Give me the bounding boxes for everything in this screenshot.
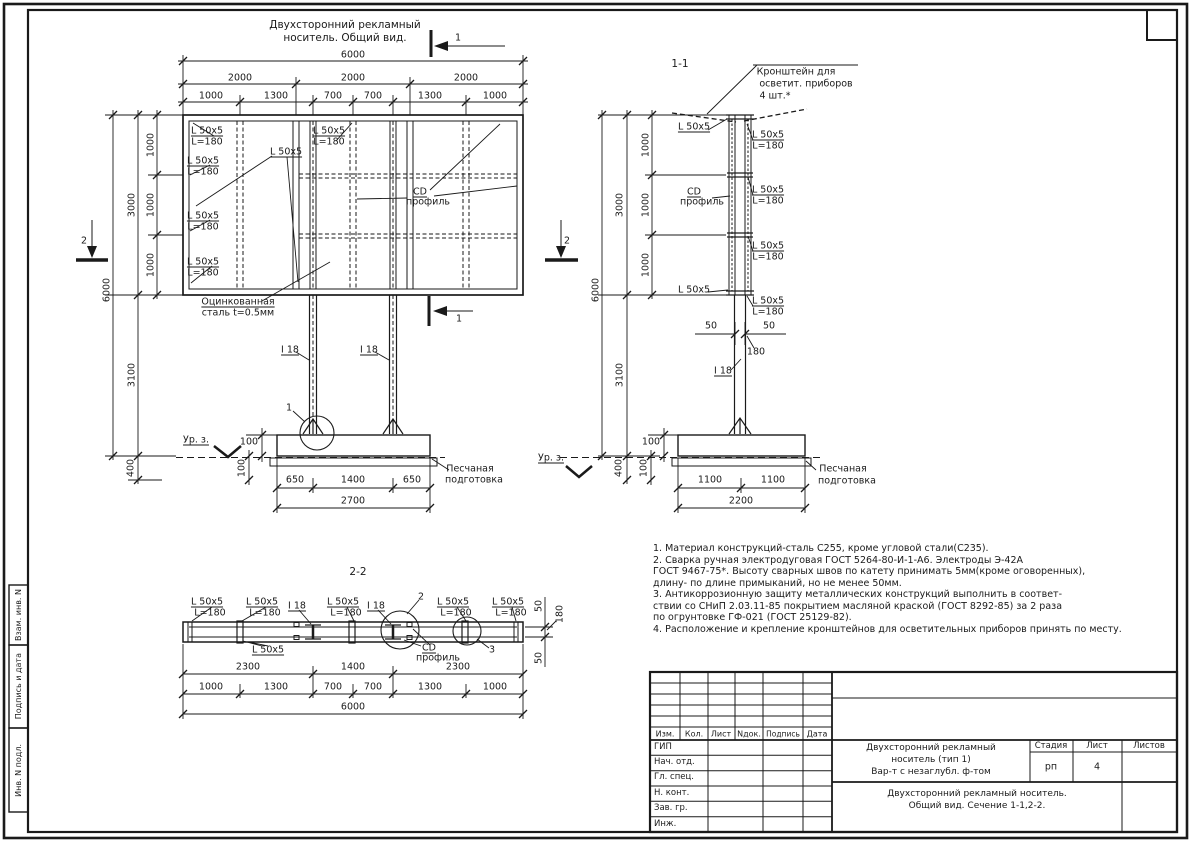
dim-label: 1300 xyxy=(264,91,288,102)
dim-label: 2000 xyxy=(341,73,365,84)
dim-label: 1300 xyxy=(264,682,288,693)
note-line: 2. Сварка ручная электродуговая ГОСТ 526… xyxy=(653,555,1183,567)
dim-label: 6000 xyxy=(591,278,602,302)
dim-label: L 50x5 xyxy=(437,597,469,608)
tb-role-zav-gr: Зав. гр. xyxy=(654,803,688,813)
dim-label: 1000 xyxy=(146,193,157,217)
tb-col-kol: Кол. xyxy=(685,729,703,738)
dim-label: 1000 xyxy=(146,253,157,277)
dim-label: 2300 xyxy=(236,662,260,673)
dim-label: L=180 xyxy=(187,268,218,279)
dim-label: сталь t=0.5мм xyxy=(202,308,274,319)
dim-label: 700 xyxy=(324,91,342,102)
dim-label: L 50x5 xyxy=(752,241,784,252)
dim-label: I 18 xyxy=(360,345,378,356)
dim-label: 3100 xyxy=(127,363,138,387)
dim-label: L=180 xyxy=(440,608,471,619)
corner-stamp-box xyxy=(1147,10,1177,40)
dim-label: 1300 xyxy=(418,682,442,693)
dim-label: 1400 xyxy=(341,475,365,486)
dim-label: I 18 xyxy=(288,601,306,612)
dim-label: 1000 xyxy=(641,253,652,277)
drawing-sheet: Двухсторонний рекламныйноситель. Общий в… xyxy=(0,0,1191,842)
tb-stage-value: рп xyxy=(1045,762,1057,773)
section-1-1-title: 1-1 xyxy=(671,58,688,70)
dim-label: 6000 xyxy=(341,50,365,61)
dim-label: 1000 xyxy=(641,193,652,217)
dim-label: 400 xyxy=(614,459,625,477)
note-line: 3. Антикоррозионную защиту металлических… xyxy=(653,589,1183,601)
dim-label: L=180 xyxy=(752,252,783,263)
tb-doc-title: Двухсторонний рекламный носитель (тип 1)… xyxy=(838,742,1024,778)
dim-label: 3000 xyxy=(615,193,626,217)
dim-label: L=180 xyxy=(752,141,783,152)
dim-label: L=180 xyxy=(249,608,280,619)
dim-label: L=180 xyxy=(495,608,526,619)
dim-label: профиль xyxy=(680,197,724,208)
note-line: ГОСТ 9467-75*. Высоту сварных швов по ка… xyxy=(653,566,1183,578)
tb-subtitle: Двухсторонний рекламный носитель. Общий … xyxy=(837,788,1117,812)
tb-col-data: Дата xyxy=(807,729,828,738)
tb-role-inzh: Инж. xyxy=(654,819,676,829)
dim-label: L=180 xyxy=(752,196,783,207)
dim-label: Кронштейн для xyxy=(757,67,836,78)
dim-label: L 50x5 xyxy=(252,645,284,656)
dim-label: L 50x5 xyxy=(191,126,223,137)
dim-label: L=180 xyxy=(187,167,218,178)
dim-label: 400 xyxy=(126,459,137,477)
dim-label: 2200 xyxy=(729,496,753,507)
tb-role-nach-otd: Нач. отд. xyxy=(654,757,695,767)
front-view-title: носитель. Общий вид. xyxy=(283,32,406,44)
note-line: 1. Материал конструкций-сталь С255, кром… xyxy=(653,543,1183,555)
dim-label: 3000 xyxy=(127,193,138,217)
dim-label: L=180 xyxy=(194,608,225,619)
detail-3-label: 3 xyxy=(489,645,495,656)
dim-label: L=180 xyxy=(313,137,344,148)
dim-label: I 18 xyxy=(281,345,299,356)
dim-label: Ур. з. xyxy=(183,435,209,446)
dim-label: 1300 xyxy=(418,91,442,102)
section-mark-1-label: 1 xyxy=(455,33,461,44)
dim-label: L 50x5 xyxy=(492,597,524,608)
drawing-linework xyxy=(0,0,1191,842)
dim-label: Песчаная xyxy=(446,464,493,475)
dim-label: 650 xyxy=(286,475,304,486)
dim-label: 1100 xyxy=(761,475,785,486)
dim-label: 1400 xyxy=(341,662,365,673)
dim-label: L 50x5 xyxy=(313,126,345,137)
dim-label: 100 xyxy=(639,459,650,477)
margin-box-vzam: Взам. инв. N xyxy=(9,585,28,645)
tb-role-n-kont: Н. конт. xyxy=(654,788,689,798)
dim-label: 700 xyxy=(364,91,382,102)
dim-label: L 50x5 xyxy=(246,597,278,608)
dim-label: подготовка xyxy=(818,476,876,487)
dim-label: L 50x5 xyxy=(752,185,784,196)
dim-label: Песчаная xyxy=(819,464,866,475)
dim-label: L 50x5 xyxy=(678,122,710,133)
tb-sheet-value: 4 xyxy=(1094,762,1100,773)
front-view xyxy=(176,115,523,466)
dim-label: 4 шт.* xyxy=(759,91,790,102)
note-line: длину- по длине примыканий, но не менее … xyxy=(653,578,1183,590)
dim-label: L=180 xyxy=(330,608,361,619)
dim-label: L=180 xyxy=(752,307,783,318)
dim-label: 6000 xyxy=(102,278,113,302)
detail-2-label: 2 xyxy=(418,592,424,603)
dim-label: профиль xyxy=(406,197,450,208)
dim-label: L 50x5 xyxy=(327,597,359,608)
dim-label: L 50x5 xyxy=(678,285,710,296)
dim-label: 1000 xyxy=(199,682,223,693)
dim-label: L 50x5 xyxy=(187,257,219,268)
dim-label: 1100 xyxy=(698,475,722,486)
dim-label: I 18 xyxy=(714,366,732,377)
note-line: ствии со СНиП 2.03.11-85 покрытием масля… xyxy=(653,601,1183,613)
margin-box-inv: Инв. N подл. xyxy=(9,728,28,812)
dim-label: 1000 xyxy=(199,91,223,102)
dim-label: подготовка xyxy=(445,475,503,486)
dim-label: 50 xyxy=(763,321,775,332)
tb-col-ndok: Nдок. xyxy=(737,729,761,738)
dim-label: 1000 xyxy=(146,133,157,157)
dim-label: осветит. приборов xyxy=(759,79,852,90)
dim-label: Ур. з. xyxy=(538,453,564,464)
tb-role-gl-spec: Гл. спец. xyxy=(654,772,694,782)
dim-label: 2000 xyxy=(228,73,252,84)
dim-label: 100 xyxy=(240,437,258,448)
tb-col-list: Лист xyxy=(711,729,731,738)
tb-sheet-label: Лист xyxy=(1086,741,1108,751)
note-line: по огрунтовке ГФ-021 (ГОСТ 25129-82). xyxy=(653,612,1183,624)
dim-label: L 50x5 xyxy=(187,211,219,222)
dim-label: 50 xyxy=(534,600,545,612)
dim-label: 100 xyxy=(237,459,248,477)
tb-col-izm: Изм. xyxy=(656,729,675,738)
ground-level-mark xyxy=(214,446,241,457)
section-2-2-title: 2-2 xyxy=(349,566,366,578)
dim-label: 100 xyxy=(642,437,660,448)
ground-level-mark xyxy=(566,466,592,477)
dim-label: L=180 xyxy=(191,137,222,148)
dim-label: 2000 xyxy=(454,73,478,84)
dim-label: L 50x5 xyxy=(270,147,302,158)
dim-label: 2300 xyxy=(446,662,470,673)
dim-label: 700 xyxy=(364,682,382,693)
dim-label: 2700 xyxy=(341,496,365,507)
section-mark-2-label: 2 xyxy=(81,236,87,247)
dim-label: 650 xyxy=(403,475,421,486)
dim-label: Оцинкованная xyxy=(201,297,274,308)
tb-col-podpis: Подпись xyxy=(766,729,800,738)
general-notes: 1. Материал конструкций-сталь С255, кром… xyxy=(653,543,1183,635)
section-mark-1-label: 1 xyxy=(456,314,462,325)
dim-label: 1000 xyxy=(483,682,507,693)
section-mark-2-label: 2 xyxy=(564,236,570,247)
dim-label: 1000 xyxy=(641,133,652,157)
dim-label: 6000 xyxy=(341,702,365,713)
dim-label: L 50x5 xyxy=(191,597,223,608)
margin-box-podpis: Подпись и дата xyxy=(9,645,28,728)
dim-label: 50 xyxy=(705,321,717,332)
dim-label: 180 xyxy=(747,347,765,358)
dim-label: 50 xyxy=(534,652,545,664)
tb-sheets-label: Листов xyxy=(1133,741,1165,751)
dim-label: 700 xyxy=(324,682,342,693)
detail-1-label: 1 xyxy=(286,403,292,414)
note-line: 4. Расположение и крепление кронштейнов … xyxy=(653,624,1183,636)
tb-stage-label: Стадия xyxy=(1035,741,1068,751)
dim-label: L 50x5 xyxy=(752,130,784,141)
dim-label: 1000 xyxy=(483,91,507,102)
dim-label: I 18 xyxy=(367,601,385,612)
dim-label: L 50x5 xyxy=(187,156,219,167)
dim-label: 180 xyxy=(555,605,566,623)
dim-label: 3100 xyxy=(615,363,626,387)
dim-label: L 50x5 xyxy=(752,296,784,307)
dim-label: L=180 xyxy=(187,222,218,233)
tb-role-gip: ГИП xyxy=(654,742,672,752)
front-view-title: Двухсторонний рекламный xyxy=(269,19,420,31)
